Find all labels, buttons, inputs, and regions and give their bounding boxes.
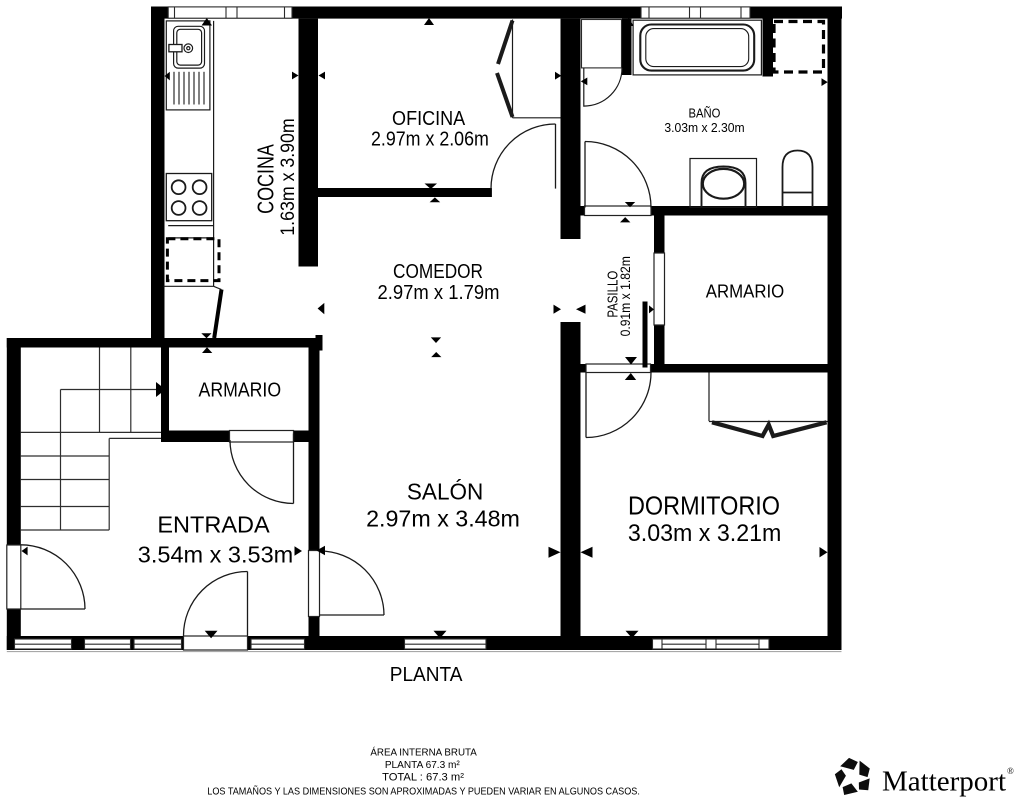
- svg-text:ARMARIO: ARMARIO: [706, 281, 785, 302]
- svg-text:Matterport: Matterport: [882, 766, 1006, 798]
- svg-text:LOS TAMAÑOS Y LAS DIMENSIONES: LOS TAMAÑOS Y LAS DIMENSIONES SON APROXI…: [207, 786, 640, 798]
- svg-text:2.97m x 3.48m: 2.97m x 3.48m: [366, 505, 520, 531]
- svg-text:TOTAL : 67.3 m²: TOTAL : 67.3 m²: [382, 772, 464, 784]
- svg-text:COCINA: COCINA: [254, 144, 280, 214]
- svg-text:ARMARIO: ARMARIO: [199, 380, 282, 402]
- svg-text:COMEDOR: COMEDOR: [393, 261, 483, 284]
- svg-text:3.03m x 2.30m: 3.03m x 2.30m: [664, 121, 744, 135]
- svg-text:PLANTA: PLANTA: [390, 664, 463, 687]
- svg-text:2.97m x 2.06m: 2.97m x 2.06m: [371, 129, 489, 151]
- svg-text:OFICINA: OFICINA: [392, 108, 465, 130]
- svg-text:3.03m x 3.21m: 3.03m x 3.21m: [628, 519, 782, 547]
- svg-text:ÁREA INTERNA BRUTA: ÁREA INTERNA BRUTA: [370, 747, 477, 758]
- svg-text:2.97m x 1.79m: 2.97m x 1.79m: [377, 281, 499, 304]
- svg-text:SALÓN: SALÓN: [407, 478, 483, 505]
- svg-text:DORMITORIO: DORMITORIO: [628, 493, 780, 521]
- svg-text:3.54m x 3.53m: 3.54m x 3.53m: [138, 542, 293, 568]
- svg-text:1.63m x 3.90m: 1.63m x 3.90m: [276, 118, 298, 235]
- svg-text:BAÑO: BAÑO: [689, 106, 721, 121]
- svg-text:ENTRADA: ENTRADA: [157, 512, 270, 538]
- svg-text:PLANTA 67.3 m²: PLANTA 67.3 m²: [385, 760, 461, 771]
- svg-text:®: ®: [1007, 766, 1014, 776]
- svg-text:0.91m x 1.82m: 0.91m x 1.82m: [617, 256, 633, 336]
